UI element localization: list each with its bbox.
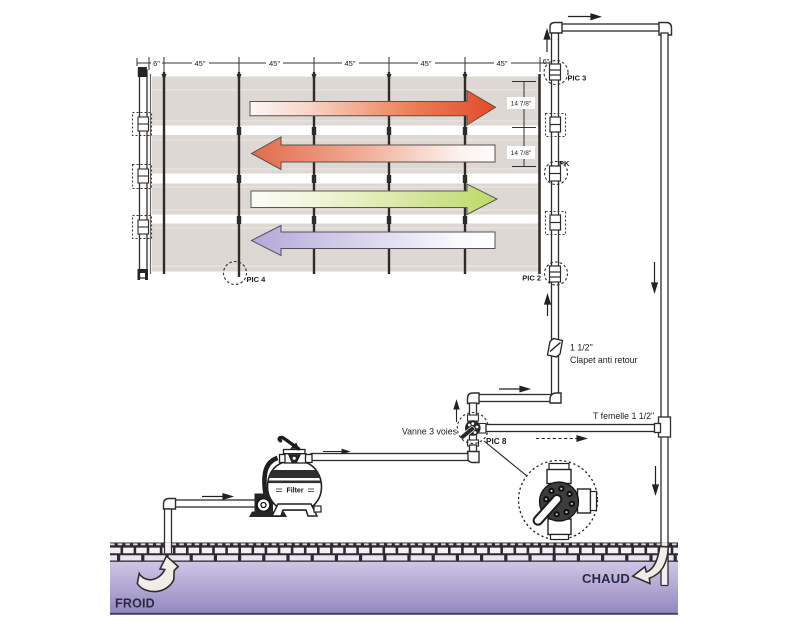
svg-text:6": 6": [543, 57, 550, 66]
svg-text:PIC 3: PIC 3: [568, 74, 587, 83]
svg-text:PIC 4: PIC 4: [247, 275, 267, 284]
svg-text:14 7/8": 14 7/8": [511, 150, 532, 157]
svg-text:Clapet anti retour: Clapet anti retour: [570, 355, 638, 365]
svg-text:14 7/8": 14 7/8": [511, 101, 532, 108]
svg-text:PK: PK: [559, 159, 570, 168]
svg-text:Vanne 3 voies: Vanne 3 voies: [402, 427, 458, 437]
svg-text:Filter: Filter: [286, 488, 303, 495]
svg-text:CHAUD: CHAUD: [582, 571, 630, 586]
svg-text:45": 45": [344, 59, 355, 68]
svg-text:PIC 2: PIC 2: [522, 274, 541, 283]
svg-text:T femelle 1 1/2": T femelle 1 1/2": [593, 411, 654, 421]
svg-text:6": 6": [153, 59, 160, 68]
svg-text:1 1/2": 1 1/2": [570, 343, 593, 353]
svg-text:FROID: FROID: [115, 597, 155, 611]
svg-text:45": 45": [496, 59, 507, 68]
svg-text:45": 45": [420, 59, 431, 68]
svg-text:45": 45": [269, 59, 280, 68]
svg-text:45": 45": [194, 59, 205, 68]
